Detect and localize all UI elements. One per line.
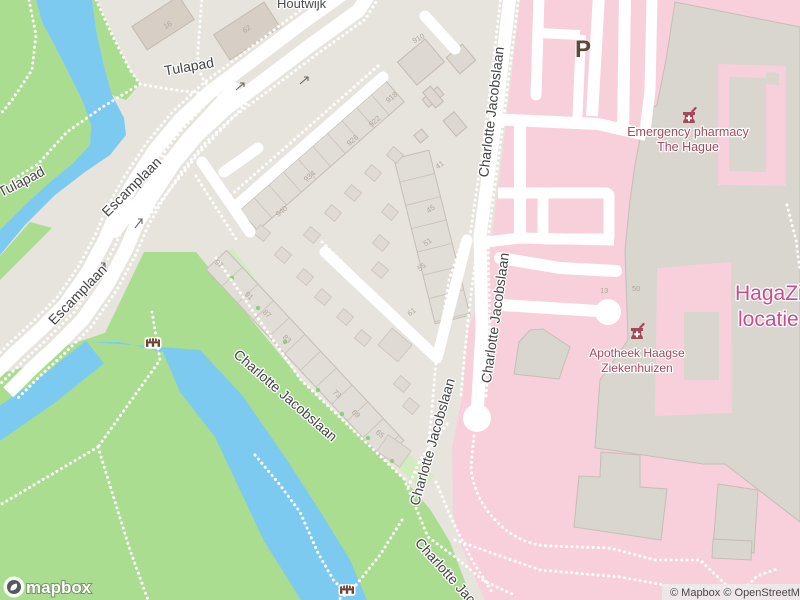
svg-text:HagaZiekenhuis,: HagaZiekenhuis, xyxy=(735,282,800,305)
svg-text:Ziekenhuizen: Ziekenhuizen xyxy=(601,361,672,375)
svg-text:P: P xyxy=(575,36,591,63)
svg-text:mapbox: mapbox xyxy=(26,578,92,597)
svg-text:Houtwijk: Houtwijk xyxy=(277,0,327,11)
svg-text:50: 50 xyxy=(632,284,640,293)
svg-text:© Mapbox © OpenStreetMap: © Mapbox © OpenStreetMap xyxy=(670,587,800,599)
svg-text:locatie Leyweg: locatie Leyweg xyxy=(738,308,800,331)
svg-text:The Hague: The Hague xyxy=(657,140,719,154)
svg-text:Emergency pharmacy: Emergency pharmacy xyxy=(627,125,749,139)
svg-text:13: 13 xyxy=(600,286,608,295)
svg-text:Apotheek Haagse: Apotheek Haagse xyxy=(589,346,685,360)
